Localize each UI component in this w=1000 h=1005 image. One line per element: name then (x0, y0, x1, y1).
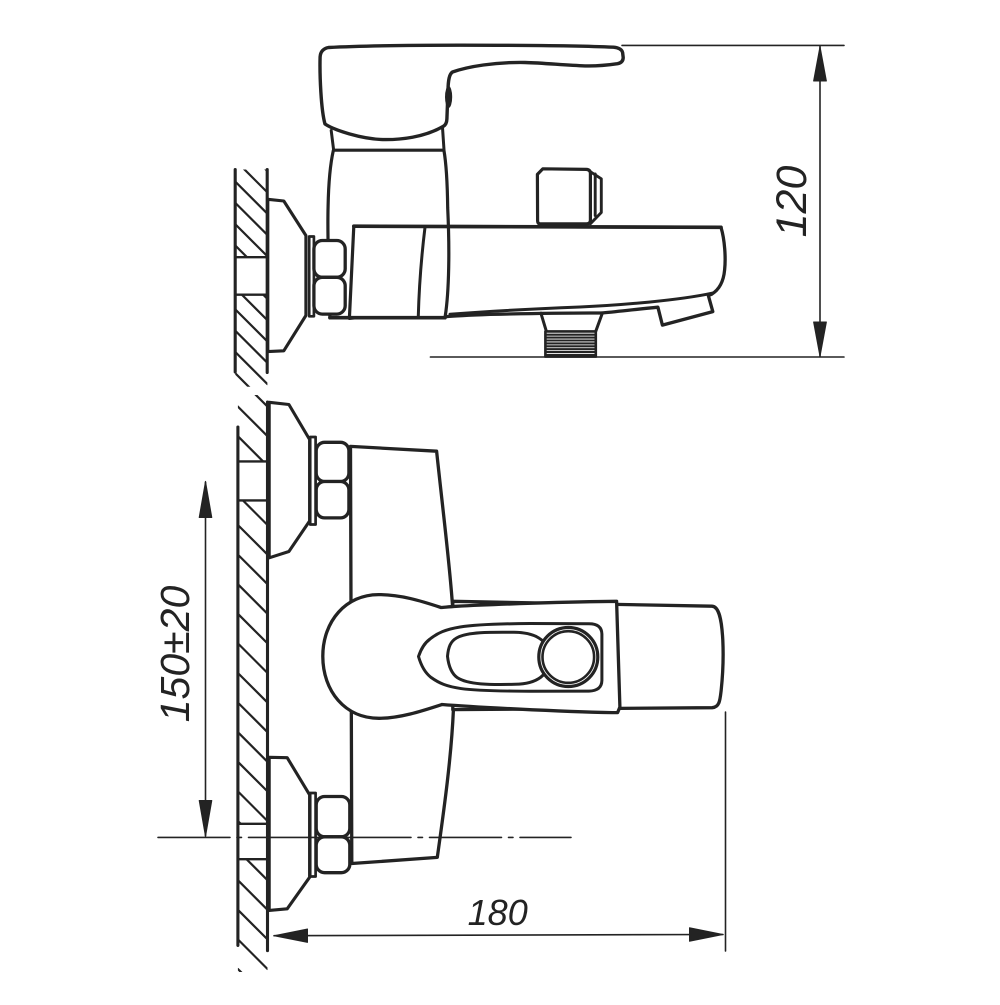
svg-text:150±20: 150±20 (152, 586, 198, 723)
svg-text:120: 120 (768, 166, 816, 238)
svg-text:180: 180 (468, 892, 528, 933)
